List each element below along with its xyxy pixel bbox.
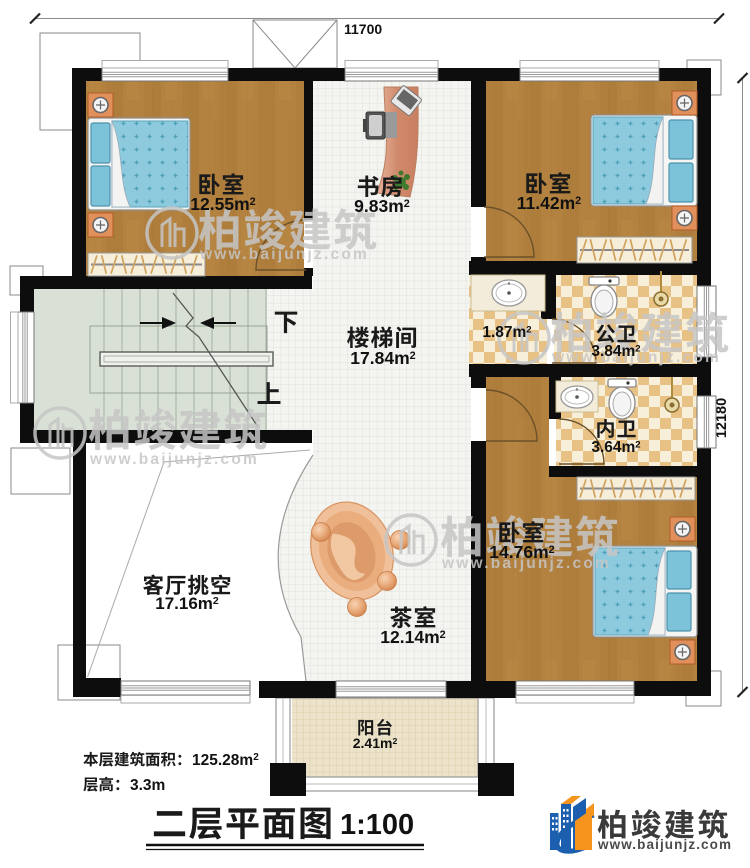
svg-text:17.16m2: 17.16m2 — [155, 594, 219, 613]
svg-text:12.14m2: 12.14m2 — [380, 627, 445, 647]
svg-text:www.baijunjz.com: www.baijunjz.com — [597, 837, 732, 852]
svg-text:14.76m2: 14.76m2 — [489, 542, 554, 562]
svg-text:1.87m2: 1.87m2 — [482, 324, 531, 341]
svg-text:www.baijunjz.com: www.baijunjz.com — [199, 246, 369, 263]
svg-text:3.84m2: 3.84m2 — [591, 343, 640, 360]
svg-text:11.42m2: 11.42m2 — [517, 193, 581, 213]
svg-text:www.baijunjz.com: www.baijunjz.com — [89, 451, 259, 468]
svg-text:125.28m2: 125.28m2 — [192, 752, 259, 769]
svg-text:17.84m2: 17.84m2 — [350, 348, 415, 368]
svg-text:11700: 11700 — [344, 21, 382, 37]
svg-text:9.83m2: 9.83m2 — [354, 196, 410, 216]
svg-text:1:100: 1:100 — [340, 809, 414, 841]
svg-text:3.64m2: 3.64m2 — [591, 439, 640, 456]
svg-text:3.3m: 3.3m — [130, 777, 165, 794]
svg-text:2.41m2: 2.41m2 — [353, 735, 398, 751]
svg-text:12.55m2: 12.55m2 — [190, 194, 255, 214]
